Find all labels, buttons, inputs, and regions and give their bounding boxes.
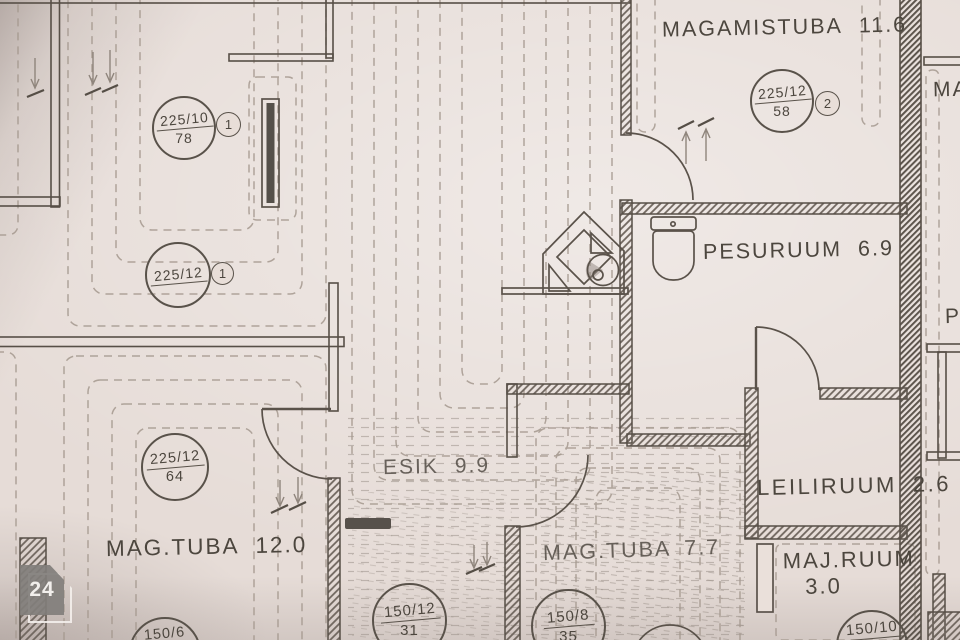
room-name: LEILIRUUM bbox=[757, 472, 897, 500]
room-name: MAG.TUBA bbox=[543, 537, 672, 565]
duct bbox=[757, 544, 773, 612]
heating-tag-circle: 225/12 58 bbox=[750, 69, 814, 133]
walls-thin bbox=[0, 0, 960, 460]
zone-number-circle: 1 bbox=[216, 112, 241, 137]
floor-plan-photo: MAGAMISTUBA11.6 PESURUUM6.9 LEILIRUUM2.6… bbox=[0, 0, 960, 640]
room-name: ESIK bbox=[383, 455, 439, 479]
heating-tag-circle: 225/12 bbox=[145, 242, 211, 308]
room-area: 2.6 bbox=[913, 471, 952, 497]
room-label-pesuruum: PESURUUM6.9 bbox=[703, 237, 894, 264]
toilet bbox=[651, 217, 696, 280]
door-mag-tuba-12 bbox=[262, 409, 332, 479]
zone-number-circle: 2 bbox=[815, 91, 840, 116]
partial-label-right-mid: P bbox=[945, 306, 960, 328]
heating-element bbox=[345, 518, 391, 529]
room-label-magamistuba: MAGAMISTUBA11.6 bbox=[662, 13, 908, 41]
party-wall bbox=[900, 0, 921, 640]
room-area: 3.0 bbox=[805, 573, 916, 598]
zone-number-circle: 1 bbox=[211, 262, 234, 285]
room-area: 7.7 bbox=[684, 535, 721, 560]
room-label-mag-tuba-12: MAG.TUBA12.0 bbox=[106, 533, 308, 561]
room-name: MAJ.RUUM bbox=[782, 547, 915, 573]
room-area: 9.9 bbox=[455, 454, 491, 478]
door-leiliruum bbox=[756, 327, 819, 390]
photo-count: 24 bbox=[20, 565, 64, 615]
room-area: 12.0 bbox=[255, 532, 307, 558]
room-area: 6.9 bbox=[858, 236, 894, 261]
shower-corner bbox=[543, 212, 624, 294]
door-magamistuba bbox=[626, 133, 693, 200]
room-label-esik: ESIK9.9 bbox=[383, 455, 491, 479]
room-name: MAG.TUBA bbox=[106, 533, 240, 561]
radiator bbox=[262, 99, 279, 207]
room-name: PESURUUM bbox=[703, 237, 843, 264]
room-label-majruum: MAJ.RUUM3.0 bbox=[782, 547, 915, 599]
room-name: MAGAMISTUBA bbox=[662, 14, 843, 42]
partial-label-right-top: MA bbox=[933, 79, 960, 102]
heating-tag-circle: 225/12 64 bbox=[141, 433, 209, 501]
room-label-leiliruum: LEILIRUUM2.6 bbox=[757, 472, 951, 499]
room-area: 11.6 bbox=[859, 12, 908, 37]
heating-tag-circle: 225/10 78 bbox=[152, 96, 216, 160]
